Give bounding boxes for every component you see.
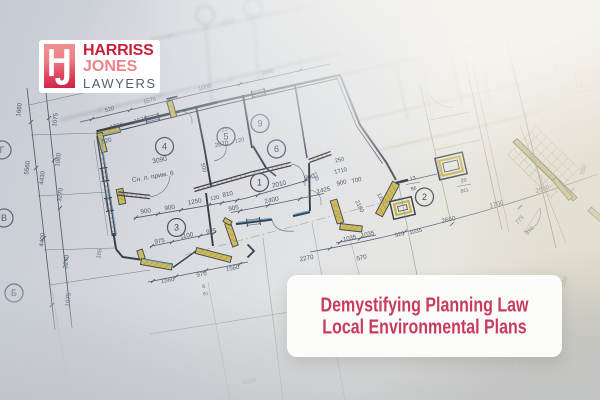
svg-text:560: 560 <box>579 163 589 175</box>
svg-text:2010: 2010 <box>220 18 236 28</box>
svg-text:13: 13 <box>409 175 416 182</box>
svg-text:775: 775 <box>515 215 526 226</box>
svg-text:3270: 3270 <box>62 254 71 269</box>
svg-text:1710: 1710 <box>334 167 348 176</box>
svg-text:2270: 2270 <box>299 254 315 264</box>
svg-text:1660: 1660 <box>15 102 24 117</box>
svg-text:81: 81 <box>203 291 210 298</box>
svg-text:Г: Г <box>0 145 5 155</box>
svg-text:975: 975 <box>206 227 218 236</box>
svg-text:4430: 4430 <box>38 170 47 185</box>
svg-text:В: В <box>1 213 7 223</box>
svg-text:5560: 5560 <box>23 160 32 175</box>
svg-text:570: 570 <box>356 253 368 262</box>
svg-text:6: 6 <box>274 144 279 154</box>
svg-text:3: 3 <box>174 223 179 233</box>
svg-text:810: 810 <box>222 190 234 199</box>
svg-text:4400: 4400 <box>38 232 47 247</box>
svg-text:105: 105 <box>96 249 104 260</box>
svg-text:120: 120 <box>235 137 245 145</box>
svg-text:1075: 1075 <box>64 292 73 307</box>
svg-text:811: 811 <box>460 187 469 195</box>
svg-text:8000: 8000 <box>243 378 258 387</box>
svg-text:3090: 3090 <box>152 156 168 166</box>
svg-text:120: 120 <box>210 195 220 203</box>
svg-text:29: 29 <box>460 177 467 184</box>
svg-text:905: 905 <box>228 204 240 213</box>
svg-text:975: 975 <box>154 237 166 246</box>
svg-text:2660: 2660 <box>441 215 457 225</box>
svg-text:1075: 1075 <box>51 112 60 127</box>
svg-text:900: 900 <box>336 179 348 187</box>
svg-text:1560: 1560 <box>160 276 175 286</box>
svg-text:6: 6 <box>202 284 206 290</box>
svg-text:1560: 1560 <box>225 264 240 274</box>
svg-text:1035: 1035 <box>409 228 423 237</box>
svg-text:250: 250 <box>334 156 345 164</box>
svg-text:86: 86 <box>410 185 417 192</box>
svg-text:1250: 1250 <box>187 197 203 206</box>
svg-text:1425: 1425 <box>316 185 332 195</box>
svg-text:Сн. л. прим. 6: Сн. л. прим. 6 <box>131 170 174 184</box>
svg-text:1100: 1100 <box>180 231 195 241</box>
svg-text:Б: Б <box>11 288 17 298</box>
svg-text:1: 1 <box>257 178 262 188</box>
svg-text:2010: 2010 <box>271 179 287 189</box>
svg-text:9: 9 <box>257 119 262 129</box>
svg-text:500: 500 <box>199 163 207 173</box>
svg-text:2670: 2670 <box>214 140 229 150</box>
svg-text:1035: 1035 <box>361 231 376 240</box>
svg-text:970: 970 <box>196 270 208 279</box>
svg-text:2: 2 <box>422 192 427 202</box>
svg-text:1080: 1080 <box>54 152 63 167</box>
svg-text:520: 520 <box>101 137 113 145</box>
svg-text:2180: 2180 <box>353 199 364 213</box>
svg-text:2400: 2400 <box>264 196 280 206</box>
svg-text:700: 700 <box>351 177 363 185</box>
svg-text:4: 4 <box>162 142 167 152</box>
svg-text:900: 900 <box>140 207 152 216</box>
